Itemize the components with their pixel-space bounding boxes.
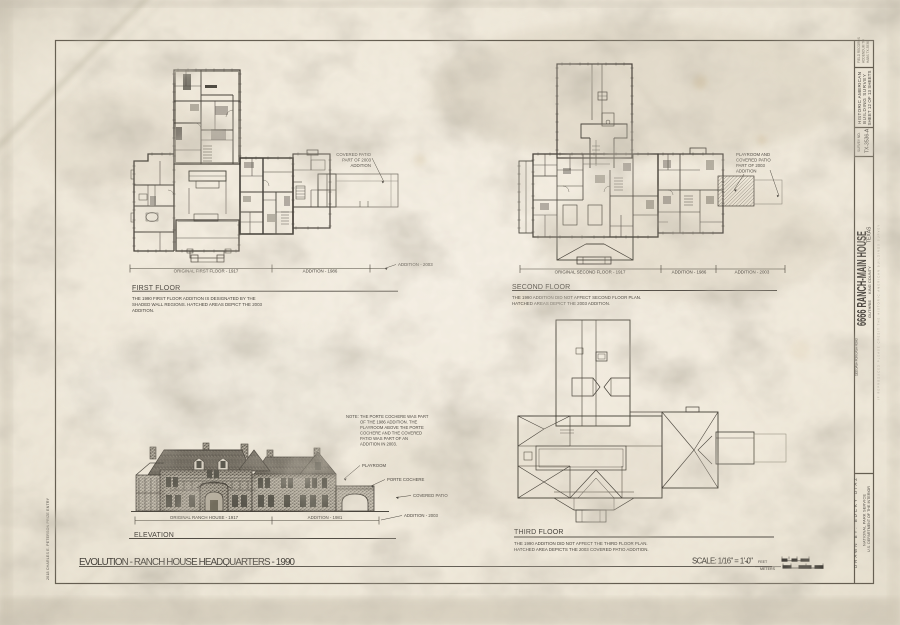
svg-text:COCHERE AND THE COVERED: COCHERE AND THE COVERED [360,431,422,436]
svg-text:ADDITION: ADDITION [736,169,757,174]
svg-text:FIELD RECORDS: FIELD RECORDS [857,37,861,63]
svg-text:NATIONAL PARK SERVICE: NATIONAL PARK SERVICE [863,494,867,546]
svg-text:ADDENDUM TO: ADDENDUM TO [862,39,866,63]
svg-text:ADDITION: ADDITION [350,163,371,168]
svg-text:COVERED PATIO: COVERED PATIO [413,493,448,498]
svg-text:PART OF 2003: PART OF 2003 [736,163,766,168]
svg-text:ADDITION - 2003: ADDITION - 2003 [735,270,770,275]
svg-text:SURVEY NO.: SURVEY NO. [857,132,861,152]
svg-text:THE 1990 FIRST FLOOR ADDITION: THE 1990 FIRST FLOOR ADDITION IS DESIGNA… [132,296,256,301]
svg-text:0: 0 [746,560,748,564]
svg-text:PLAYROOM: PLAYROOM [362,463,386,468]
svg-text:ADDITION - 1986: ADDITION - 1986 [303,269,338,274]
svg-text:ELEVATION: ELEVATION [134,532,174,539]
svg-text:ADDITION - 1981: ADDITION - 1981 [308,515,343,520]
svg-text:THE 1990 ADDITION DID NOT AFFE: THE 1990 ADDITION DID NOT AFFECT THE THI… [514,541,648,546]
svg-text:HATCHED AREAS DEPICT THE 2003: HATCHED AREAS DEPICT THE 2003 ADDITION. [512,301,610,306]
svg-text:OF THE 1986 ADDITION. THE: OF THE 1986 ADDITION. THE [360,420,418,425]
svg-text:ADDITION - 2003: ADDITION - 2003 [398,262,433,267]
svg-text:U.S. DEPARTMENT OF THE INTERIO: U.S. DEPARTMENT OF THE INTERIOR [867,486,871,552]
svg-text:ORIGINAL FIRST FLOOR - 1917: ORIGINAL FIRST FLOOR - 1917 [174,269,239,274]
svg-text:SHADED WALL REGIONS. HATCHED A: SHADED WALL REGIONS. HATCHED AREAS DEPIC… [132,302,263,307]
svg-text:ADDITION IN 2003.: ADDITION IN 2003. [360,442,397,447]
svg-text:COVERED PATIO: COVERED PATIO [336,152,371,157]
svg-text:NOTE:: NOTE: [346,414,359,419]
svg-text:PLAYROOM ABOVE THE PORTE: PLAYROOM ABOVE THE PORTE [360,425,424,430]
svg-text:THE PORTE COCHERE WAS PART: THE PORTE COCHERE WAS PART [360,414,429,419]
svg-text:THE 1990 ADDITION DID NOT AFFE: THE 1990 ADDITION DID NOT AFFECT SECOND … [512,295,641,300]
svg-text:PLAYROOM AND: PLAYROOM AND [736,152,770,157]
svg-text:HATCHED AREA DEPICTS THE 2003: HATCHED AREA DEPICTS THE 2003 COVERED PA… [514,547,649,552]
svg-text:PART OF 2003: PART OF 2003 [342,158,372,163]
svg-text:ADDITION - 1986: ADDITION - 1986 [672,270,707,275]
svg-text:COVERED PATIO: COVERED PATIO [736,158,771,163]
svg-text:KING COUNTY: KING COUNTY [867,266,872,294]
svg-text:METERS: METERS [760,567,776,571]
svg-text:PATIO WAS PART OF AN: PATIO WAS PART OF AN [360,436,408,441]
svg-text:1102 DASH FOR CASH ROAD: 1102 DASH FOR CASH ROAD [855,337,859,376]
svg-text:HABS TX-3536: HABS TX-3536 [866,41,870,63]
svg-text:ADDITION.: ADDITION. [132,308,154,313]
svg-text:ADDITION - 2003: ADDITION - 2003 [404,513,439,518]
svg-text:THIRD FLOOR: THIRD FLOOR [514,529,564,536]
svg-text:SHEET 12 OF 13 SHEETS: SHEET 12 OF 13 SHEETS [867,70,872,125]
svg-text:FEET: FEET [758,560,768,564]
svg-text:2018 CHARLES E. PETERSON PRIZE: 2018 CHARLES E. PETERSON PRIZE ENTRY [46,497,50,580]
svg-text:GUTHRIE: GUTHRIE [867,300,872,318]
svg-text:SECOND FLOOR: SECOND FLOOR [512,284,570,291]
svg-text:TX-3536-A: TX-3536-A [865,128,871,153]
svg-text:ORIGINAL RANCH HOUSE - 1917: ORIGINAL RANCH HOUSE - 1917 [170,515,239,520]
svg-text:SCALE: 1/16" = 1'-0": SCALE: 1/16" = 1'-0" [692,557,753,566]
svg-text:IF REPRODUCED PLEASE CREDIT TH: IF REPRODUCED PLEASE CREDIT THE HISTORIC… [878,225,881,400]
svg-text:ORIGINAL SECOND FLOOR - 1917: ORIGINAL SECOND FLOOR - 1917 [555,270,626,275]
svg-text:PORTE COCHERE: PORTE COCHERE [387,477,425,482]
